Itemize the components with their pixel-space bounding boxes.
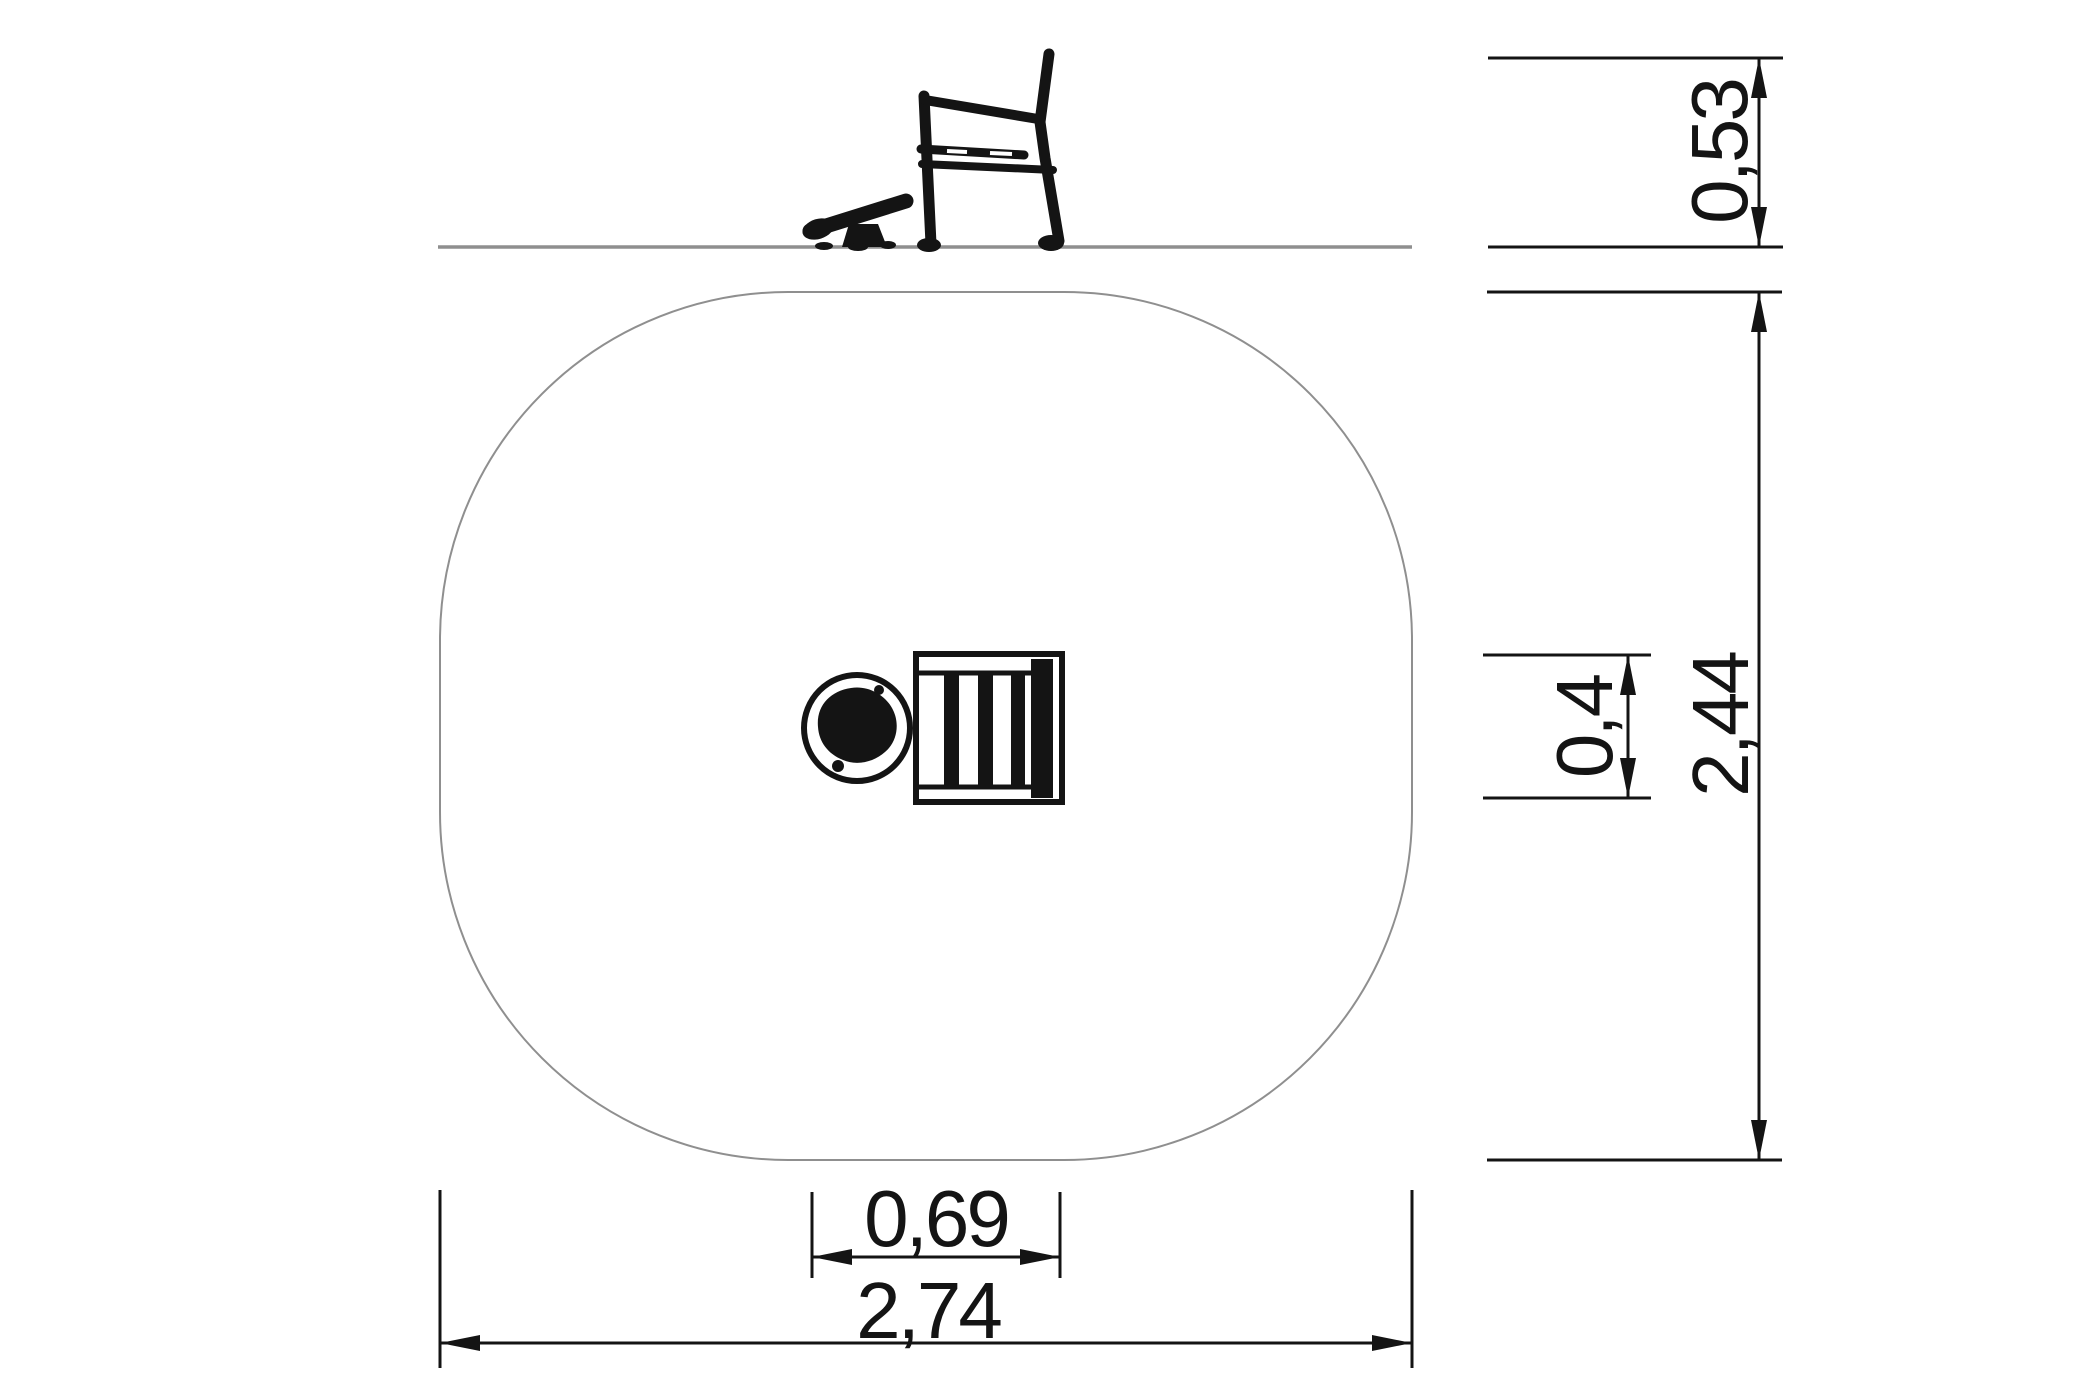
- dimension-seat-height: 0,53: [1488, 58, 1783, 247]
- chair-front-post: [924, 96, 931, 244]
- bolt-hole: [832, 760, 844, 772]
- chair-front-foot: [917, 238, 941, 252]
- arrow-right-icon: [1020, 1249, 1060, 1265]
- technical-drawing: 0,53 2,44 0,4 0,69 2,74: [0, 0, 2084, 1388]
- chair-rear-foot: [1038, 235, 1064, 251]
- arrow-left-icon: [812, 1249, 852, 1265]
- plan-view: [440, 292, 1412, 1160]
- chair-rear-post: [1040, 54, 1059, 241]
- seat-slat: [978, 673, 993, 787]
- arrow-down-icon: [1751, 1120, 1767, 1160]
- chair-seat-lower-rail: [922, 164, 1053, 170]
- seat-slat: [1011, 673, 1025, 787]
- seat-slat-gap: [990, 153, 1012, 154]
- dimension-value: 0,53: [1675, 80, 1764, 224]
- seat-end-bar: [1031, 659, 1053, 798]
- dimension-value: 0,4: [1540, 674, 1629, 778]
- chair-backrest-top-rail: [925, 100, 1038, 119]
- spring-rider-side-view: [800, 54, 1064, 252]
- pedal-foot: [848, 243, 868, 251]
- seat-slat-gap: [947, 151, 967, 152]
- arrow-right-icon: [1372, 1335, 1412, 1351]
- arrow-left-icon: [440, 1335, 480, 1351]
- dimension-seat-depth: 0,4: [1483, 655, 1651, 798]
- seat-top-view: [916, 654, 1062, 802]
- spring-base-top-view: [804, 675, 910, 781]
- pedal-foot: [880, 241, 896, 249]
- dimension-equipment-width: 0,69: [812, 1174, 1060, 1278]
- safety-zone-outline: [440, 292, 1412, 1160]
- spring-core-blob: [818, 687, 897, 762]
- pedal-foot: [815, 242, 833, 250]
- bolt-hole: [874, 685, 884, 695]
- dimension-value: 2,74: [856, 1266, 1001, 1355]
- dimension-value: 2,44: [1676, 652, 1765, 797]
- dimension-zone-depth: 2,44: [1487, 292, 1782, 1160]
- side-elevation-view: [438, 54, 1412, 252]
- seat-slat: [944, 673, 959, 787]
- dimension-value: 0,69: [864, 1174, 1008, 1263]
- arrow-up-icon: [1751, 292, 1767, 332]
- pedal-pivot-mount: [842, 224, 887, 247]
